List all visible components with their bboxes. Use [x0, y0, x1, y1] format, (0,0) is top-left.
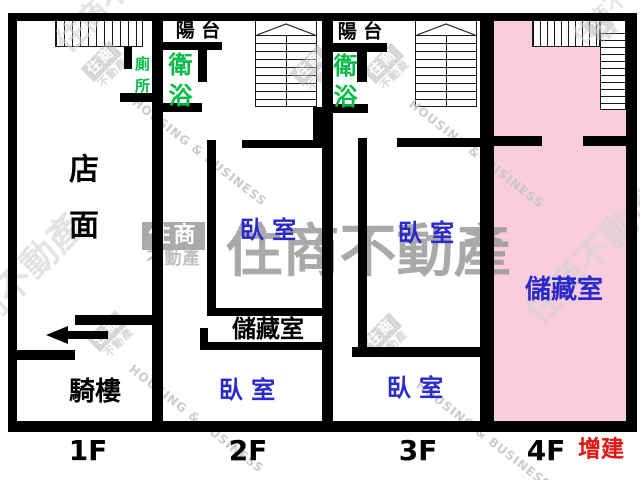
- floor-label-1f: 1F: [69, 437, 108, 465]
- stairs-1f: [55, 21, 143, 47]
- room-label-storage-4f: 儲藏室: [525, 277, 603, 303]
- wall-1f-entry-upper: [75, 315, 152, 325]
- entrance-arrow-icon: [46, 325, 110, 345]
- stairs-4f-top-run: [532, 21, 600, 47]
- stairs-direction-chevron: [256, 22, 316, 36]
- wall-4f-partition-right: [583, 136, 626, 146]
- floor-label-3f: 3F: [399, 437, 438, 465]
- room-label-bath-2f: 衛浴: [166, 52, 190, 114]
- stair-treads: [56, 21, 142, 46]
- stairs-2f: [255, 21, 317, 107]
- wall-3f-bath-side: [357, 43, 367, 82]
- room-label-bedroom-lower-3f: 臥 室: [387, 376, 443, 400]
- watermark-slogan: HOUSING & BUSINESS: [129, 95, 269, 209]
- wall-outer-right: [626, 13, 637, 432]
- room-label-storage-2f: 儲藏室: [232, 317, 304, 341]
- wall-2f-balcony: [163, 42, 222, 50]
- annotation-addition: 增建: [578, 439, 624, 462]
- room-label-storefront-1f: 店面: [65, 153, 95, 265]
- room-label-bedroom-upper-2f: 臥 室: [240, 218, 296, 242]
- wall-3f-bedroom-top: [397, 138, 480, 147]
- wall-divider-3f-4f: [480, 13, 494, 432]
- room-label-bedroom-upper-3f: 臥 室: [398, 221, 454, 245]
- stair-centerline: [286, 35, 287, 106]
- floor-label-4f: 4F: [527, 437, 566, 465]
- watermark-stamp-sub: 不動產: [374, 326, 412, 364]
- wall-2f-bath-side: [198, 42, 207, 82]
- room-label-bedroom-lower-2f: 臥 室: [219, 378, 275, 402]
- wall-divider-1f-2f: [152, 13, 163, 432]
- room-label-toilet-1f: 廁所: [134, 56, 149, 100]
- room-label-bath-3f: 衛浴: [331, 53, 355, 115]
- wall-2f-bedroom-left: [207, 140, 216, 316]
- wall-4f-partition-left: [494, 136, 542, 146]
- stair-treads: [601, 33, 625, 109]
- floor-label-2f: 2F: [229, 437, 268, 465]
- stair-centerline: [446, 35, 447, 106]
- wall-1f-toilet-side: [124, 47, 132, 69]
- wall-2f-storage-bottom: [200, 342, 322, 350]
- room-label-balcony-2f: 陽 台: [176, 22, 221, 41]
- watermark-stamp-sub: 不動產: [376, 56, 414, 94]
- floor-plan: 住商 不動產 住商不動產 住商 不動產 住商 不動產 住商 不動產 住商 不動產…: [0, 0, 640, 480]
- stairs-3f: [415, 21, 477, 107]
- wall-outer-left: [8, 13, 17, 432]
- room-label-balcony-3f: 陽 台: [338, 23, 383, 42]
- room-label-arcade-1f: 騎樓: [69, 379, 121, 405]
- wall-2f-bedroom-top: [242, 140, 322, 148]
- stair-treads: [533, 21, 599, 46]
- wall-1f-entry-lower: [17, 350, 75, 360]
- stairs-direction-chevron: [416, 22, 476, 36]
- stairs-4f-right-run: [600, 21, 626, 110]
- wall-3f-bedroom-left: [358, 138, 367, 352]
- wall-3f-bedroom-bottom: [352, 347, 480, 357]
